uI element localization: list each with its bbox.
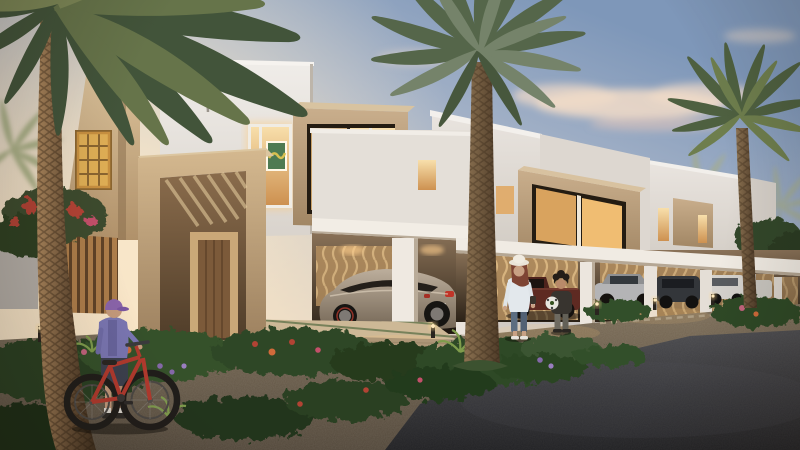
townhouse-dusk-render <box>0 0 800 450</box>
vignette <box>0 0 800 450</box>
